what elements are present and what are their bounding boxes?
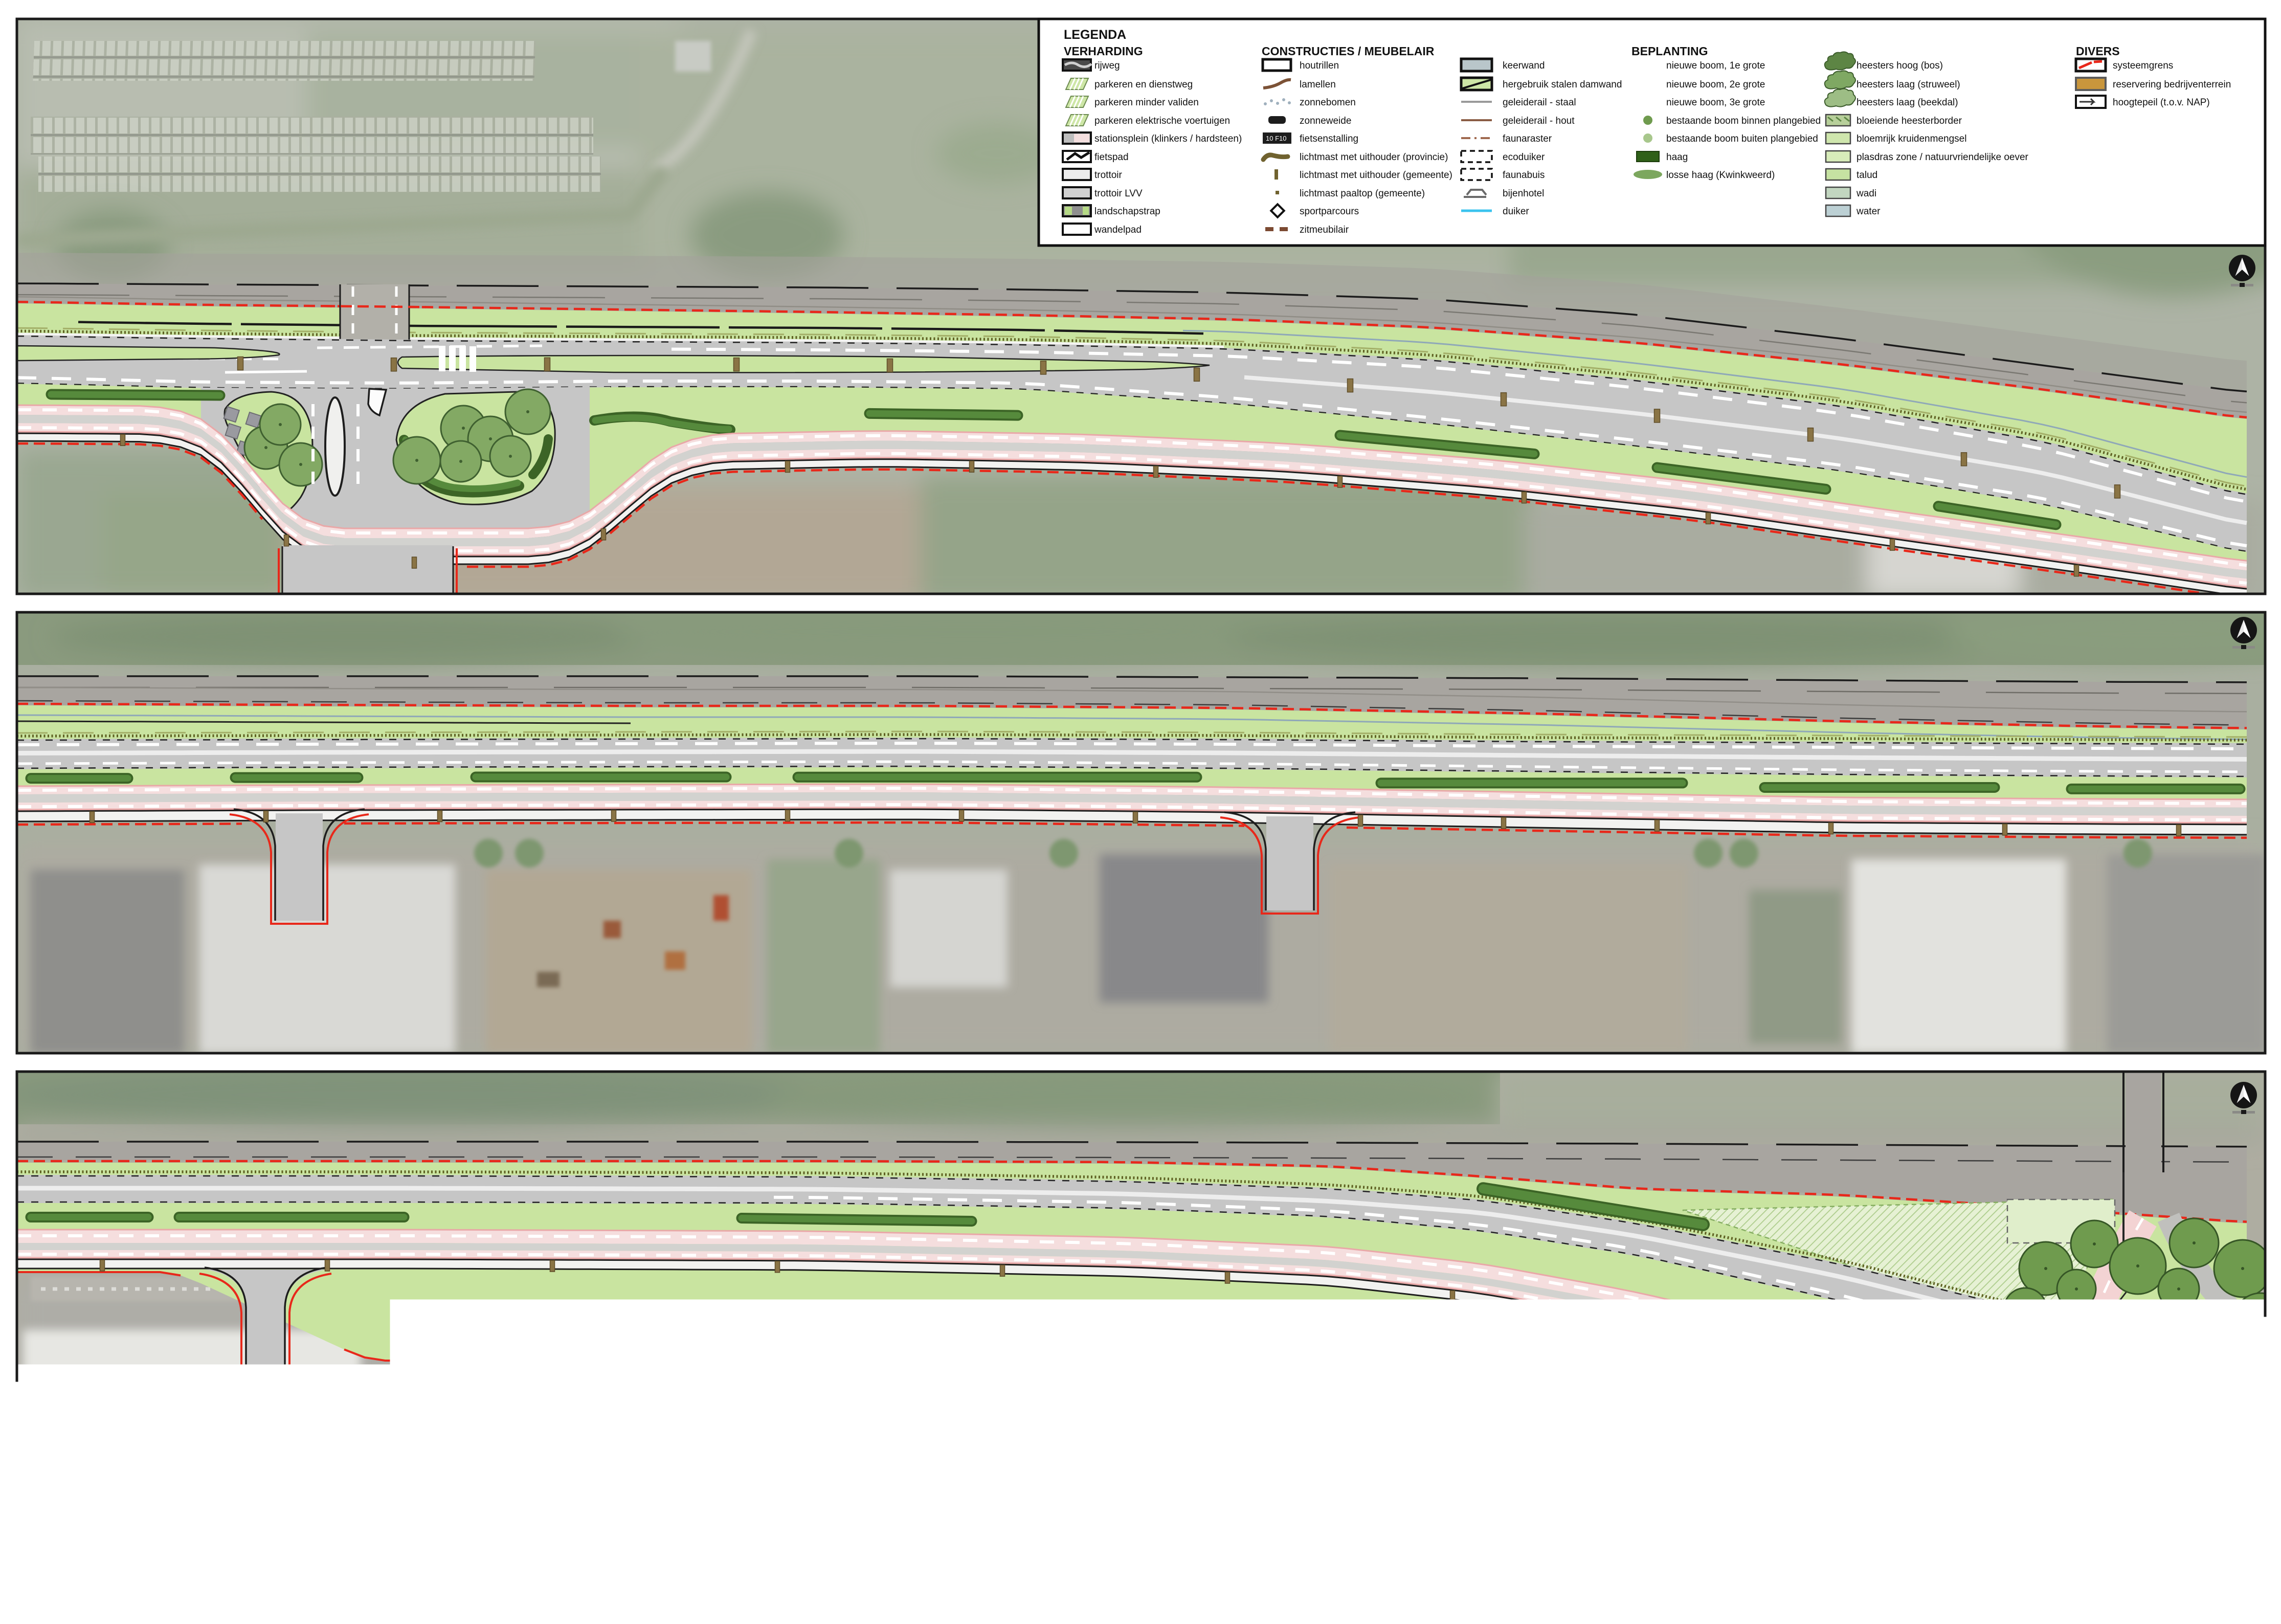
svg-text:zonneweide: zonneweide	[1300, 116, 1351, 126]
svg-text:DIVERS: DIVERS	[2076, 45, 2120, 58]
svg-text:rijweg: rijweg	[1094, 60, 1120, 71]
svg-text:bestaande boom buiten plangebi: bestaande boom buiten plangebied	[1666, 134, 1818, 144]
svg-text:LEGENDA: LEGENDA	[1064, 28, 1126, 42]
svg-text:00079-TEN-O-IRP-TEK-SI-102: 00079-TEN-O-IRP-TEK-SI-102	[2084, 1576, 2232, 1588]
svg-text:Blad B - Kwinkweerd | tek nr.: Blad B - Kwinkweerd | tek nr.	[1913, 1575, 2067, 1588]
svg-text:haag: haag	[1666, 152, 1688, 163]
svg-text:reservering bedrijventerrein: reservering bedrijventerrein	[2113, 79, 2231, 90]
svg-text:bijenhotel: bijenhotel	[1503, 188, 1544, 199]
svg-text:lichtmast paaltop (gemeente): lichtmast paaltop (gemeente)	[1300, 188, 1425, 199]
svg-text:fietsenstalling: fietsenstalling	[1300, 134, 1358, 144]
svg-text:plasdras zone / natuurvriendel: plasdras zone / natuurvriendelijke oever	[1857, 152, 2029, 163]
svg-text:lichtmast met uithouder (provi: lichtmast met uithouder (provincie)	[1300, 152, 1448, 163]
svg-text:fietspad: fietspad	[1094, 152, 1129, 163]
svg-text:heesters laag (beekdal): heesters laag (beekdal)	[1857, 97, 1958, 108]
svg-text:wandelpad: wandelpad	[1094, 225, 1142, 235]
svg-text:wadi: wadi	[1856, 188, 1876, 199]
svg-text:parkeren elektrische voertuige: parkeren elektrische voertuigen	[1094, 116, 1230, 126]
svg-text:nieuwe boom, 3e grote: nieuwe boom, 3e grote	[1666, 97, 1765, 108]
svg-text:hergebruik stalen damwand: hergebruik stalen damwand	[1503, 79, 1622, 90]
svg-text:talud: talud	[1857, 170, 1877, 181]
svg-text:duiker: duiker	[1503, 206, 1529, 217]
svg-text:lichtmast met uithouder (gemee: lichtmast met uithouder (gemeente)	[1300, 170, 1452, 181]
svg-text:heesters hoog (bos): heesters hoog (bos)	[1857, 60, 1943, 71]
svg-text:landschapstrap: landschapstrap	[1094, 206, 1160, 217]
svg-text:Ruimtelijk ontwerp | Planteken: Ruimtelijk ontwerp | Plantekening	[1913, 1553, 2101, 1567]
svg-text:bestaande boom binnen plangebi: bestaande boom binnen plangebied	[1666, 116, 1821, 126]
svg-text:geleiderail - hout: geleiderail - hout	[1503, 116, 1575, 126]
svg-text:systeemgrens: systeemgrens	[2113, 60, 2173, 71]
svg-text:nieuwe boom, 2e grote: nieuwe boom, 2e grote	[1666, 79, 1765, 90]
svg-text:trottoir LVV: trottoir LVV	[1094, 188, 1143, 199]
svg-text:water: water	[1856, 206, 1881, 217]
svg-text:CONSTRUCTIES / MEUBELAIR: CONSTRUCTIES / MEUBELAIR	[1262, 45, 1435, 58]
svg-text:faunabuis: faunabuis	[1503, 170, 1545, 181]
svg-text:parkeren minder validen: parkeren minder validen	[1094, 97, 1199, 108]
svg-text:faunaraster: faunaraster	[1503, 134, 1552, 144]
svg-text:trottoir: trottoir	[1094, 170, 1123, 181]
svg-text:3.: 3.	[1885, 1553, 1895, 1567]
svg-text:10 F10: 10 F10	[1266, 135, 1286, 142]
svg-text:stationsplein (klinkers / hard: stationsplein (klinkers / hardsteen)	[1094, 134, 1242, 144]
svg-text:losse haag (Kwinkweerd): losse haag (Kwinkweerd)	[1666, 170, 1775, 181]
svg-text:nieuwe boom, 1e grote: nieuwe boom, 1e grote	[1666, 60, 1765, 71]
svg-text:heesters laag (struweel): heesters laag (struweel)	[1857, 79, 1960, 90]
svg-text:bloemrijk kruidenmengsel: bloemrijk kruidenmengsel	[1857, 134, 1966, 144]
svg-text:BEPLANTING: BEPLANTING	[1631, 45, 1708, 58]
svg-text:keerwand: keerwand	[1503, 60, 1545, 71]
svg-text:houtrillen: houtrillen	[1300, 60, 1339, 71]
svg-text:bloeiende heesterborder: bloeiende heesterborder	[1857, 116, 1962, 126]
svg-text:VERHARDING: VERHARDING	[1064, 45, 1143, 58]
svg-text:parkeren en dienstweg: parkeren en dienstweg	[1094, 79, 1193, 90]
svg-text:geleiderail - staal: geleiderail - staal	[1503, 97, 1576, 108]
svg-text:hoogtepeil (t.o.v. NAP): hoogtepeil (t.o.v. NAP)	[2113, 97, 2210, 108]
svg-text:sportparcours: sportparcours	[1300, 206, 1359, 217]
svg-text:ecoduiker: ecoduiker	[1503, 152, 1545, 163]
svg-text:zonnebomen: zonnebomen	[1300, 97, 1356, 108]
svg-text:lamellen: lamellen	[1300, 79, 1336, 90]
svg-text:zitmeubilair: zitmeubilair	[1300, 225, 1349, 235]
